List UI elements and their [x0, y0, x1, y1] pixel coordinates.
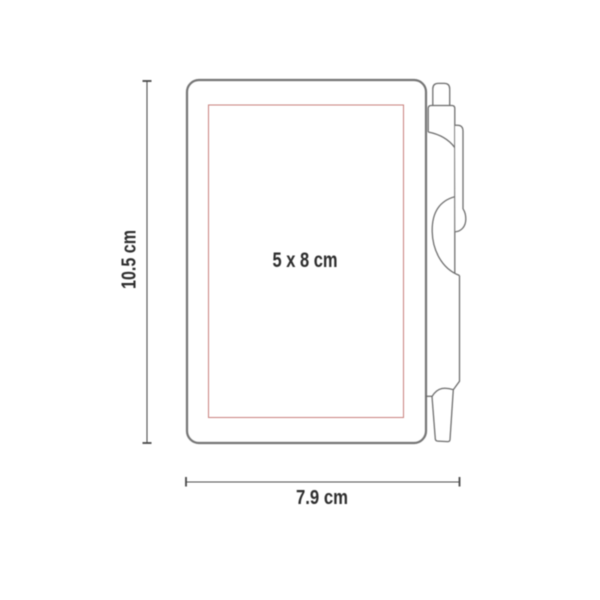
- svg-text:5 x 8 cm: 5 x 8 cm: [273, 249, 338, 272]
- svg-text:7.9 cm: 7.9 cm: [296, 487, 348, 509]
- svg-text:10.5 cm: 10.5 cm: [119, 230, 141, 289]
